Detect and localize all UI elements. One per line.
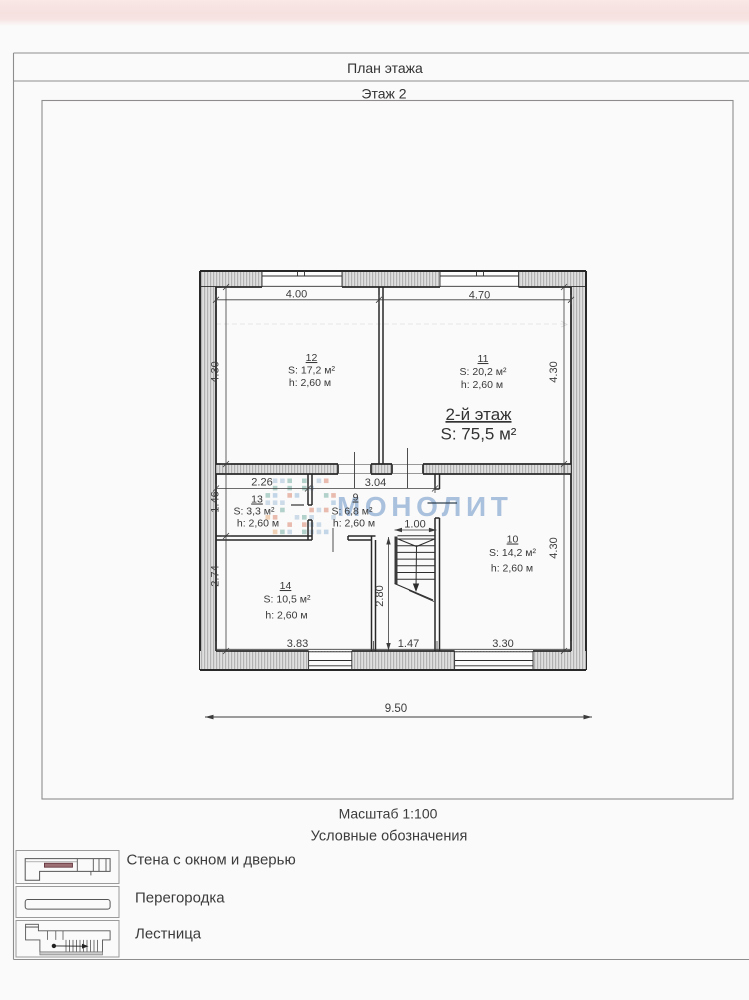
svg-text:h: 2,60 м: h: 2,60 м (237, 518, 279, 530)
svg-text:13: 13 (251, 494, 263, 506)
svg-text:3.04: 3.04 (365, 477, 386, 489)
svg-text:10: 10 (507, 534, 519, 546)
svg-text:Масштаб 1:100: Масштаб 1:100 (339, 806, 438, 822)
svg-text:h: 2,60 м: h: 2,60 м (333, 518, 375, 530)
svg-text:2.74: 2.74 (210, 565, 222, 586)
svg-text:S: 3,3 м²: S: 3,3 м² (233, 506, 275, 518)
svg-text:1.46: 1.46 (210, 491, 222, 512)
svg-text:Лестница: Лестница (135, 926, 202, 943)
svg-text:S: 10,5 м²: S: 10,5 м² (264, 594, 311, 606)
svg-text:9: 9 (353, 492, 359, 504)
svg-text:S: 6,8 м²: S: 6,8 м² (331, 506, 373, 518)
svg-text:План этажа: План этажа (347, 60, 423, 76)
svg-text:2-й этаж: 2-й этаж (445, 405, 512, 424)
svg-text:S: 14,2 м²: S: 14,2 м² (489, 547, 536, 559)
svg-text:9.50: 9.50 (385, 703, 407, 715)
svg-text:S: 20,2 м²: S: 20,2 м² (460, 366, 507, 378)
svg-text:2.26: 2.26 (251, 477, 272, 489)
svg-text:S: 17,2 м²: S: 17,2 м² (288, 365, 335, 377)
svg-text:Стена с окном и дверью: Стена с окном и дверью (127, 852, 296, 869)
svg-text:3.30: 3.30 (492, 638, 513, 650)
svg-text:h: 2,60 м: h: 2,60 м (461, 379, 503, 391)
svg-text:14: 14 (280, 580, 292, 592)
svg-text:4.70: 4.70 (469, 290, 490, 302)
svg-text:11: 11 (478, 353, 489, 365)
svg-text:S: 75,5 м²: S: 75,5 м² (441, 425, 517, 444)
svg-text:Этаж 2: Этаж 2 (361, 86, 406, 102)
svg-text:12: 12 (306, 352, 318, 364)
svg-text:h: 2,60 м: h: 2,60 м (265, 610, 307, 622)
svg-text:3.83: 3.83 (287, 638, 308, 650)
svg-text:Перегородка: Перегородка (135, 890, 225, 907)
svg-text:4.30: 4.30 (210, 361, 222, 382)
svg-text:1.47: 1.47 (398, 638, 419, 650)
svg-text:4.00: 4.00 (286, 289, 307, 301)
svg-text:1.00: 1.00 (404, 519, 425, 531)
svg-text:2.80: 2.80 (374, 585, 386, 606)
svg-text:Условные обозначения: Условные обозначения (311, 829, 468, 845)
svg-text:4.30: 4.30 (548, 537, 560, 558)
svg-text:h: 2,60 м: h: 2,60 м (289, 377, 331, 389)
svg-text:h: 2,60 м: h: 2,60 м (491, 563, 533, 575)
svg-text:4.30: 4.30 (548, 361, 560, 382)
